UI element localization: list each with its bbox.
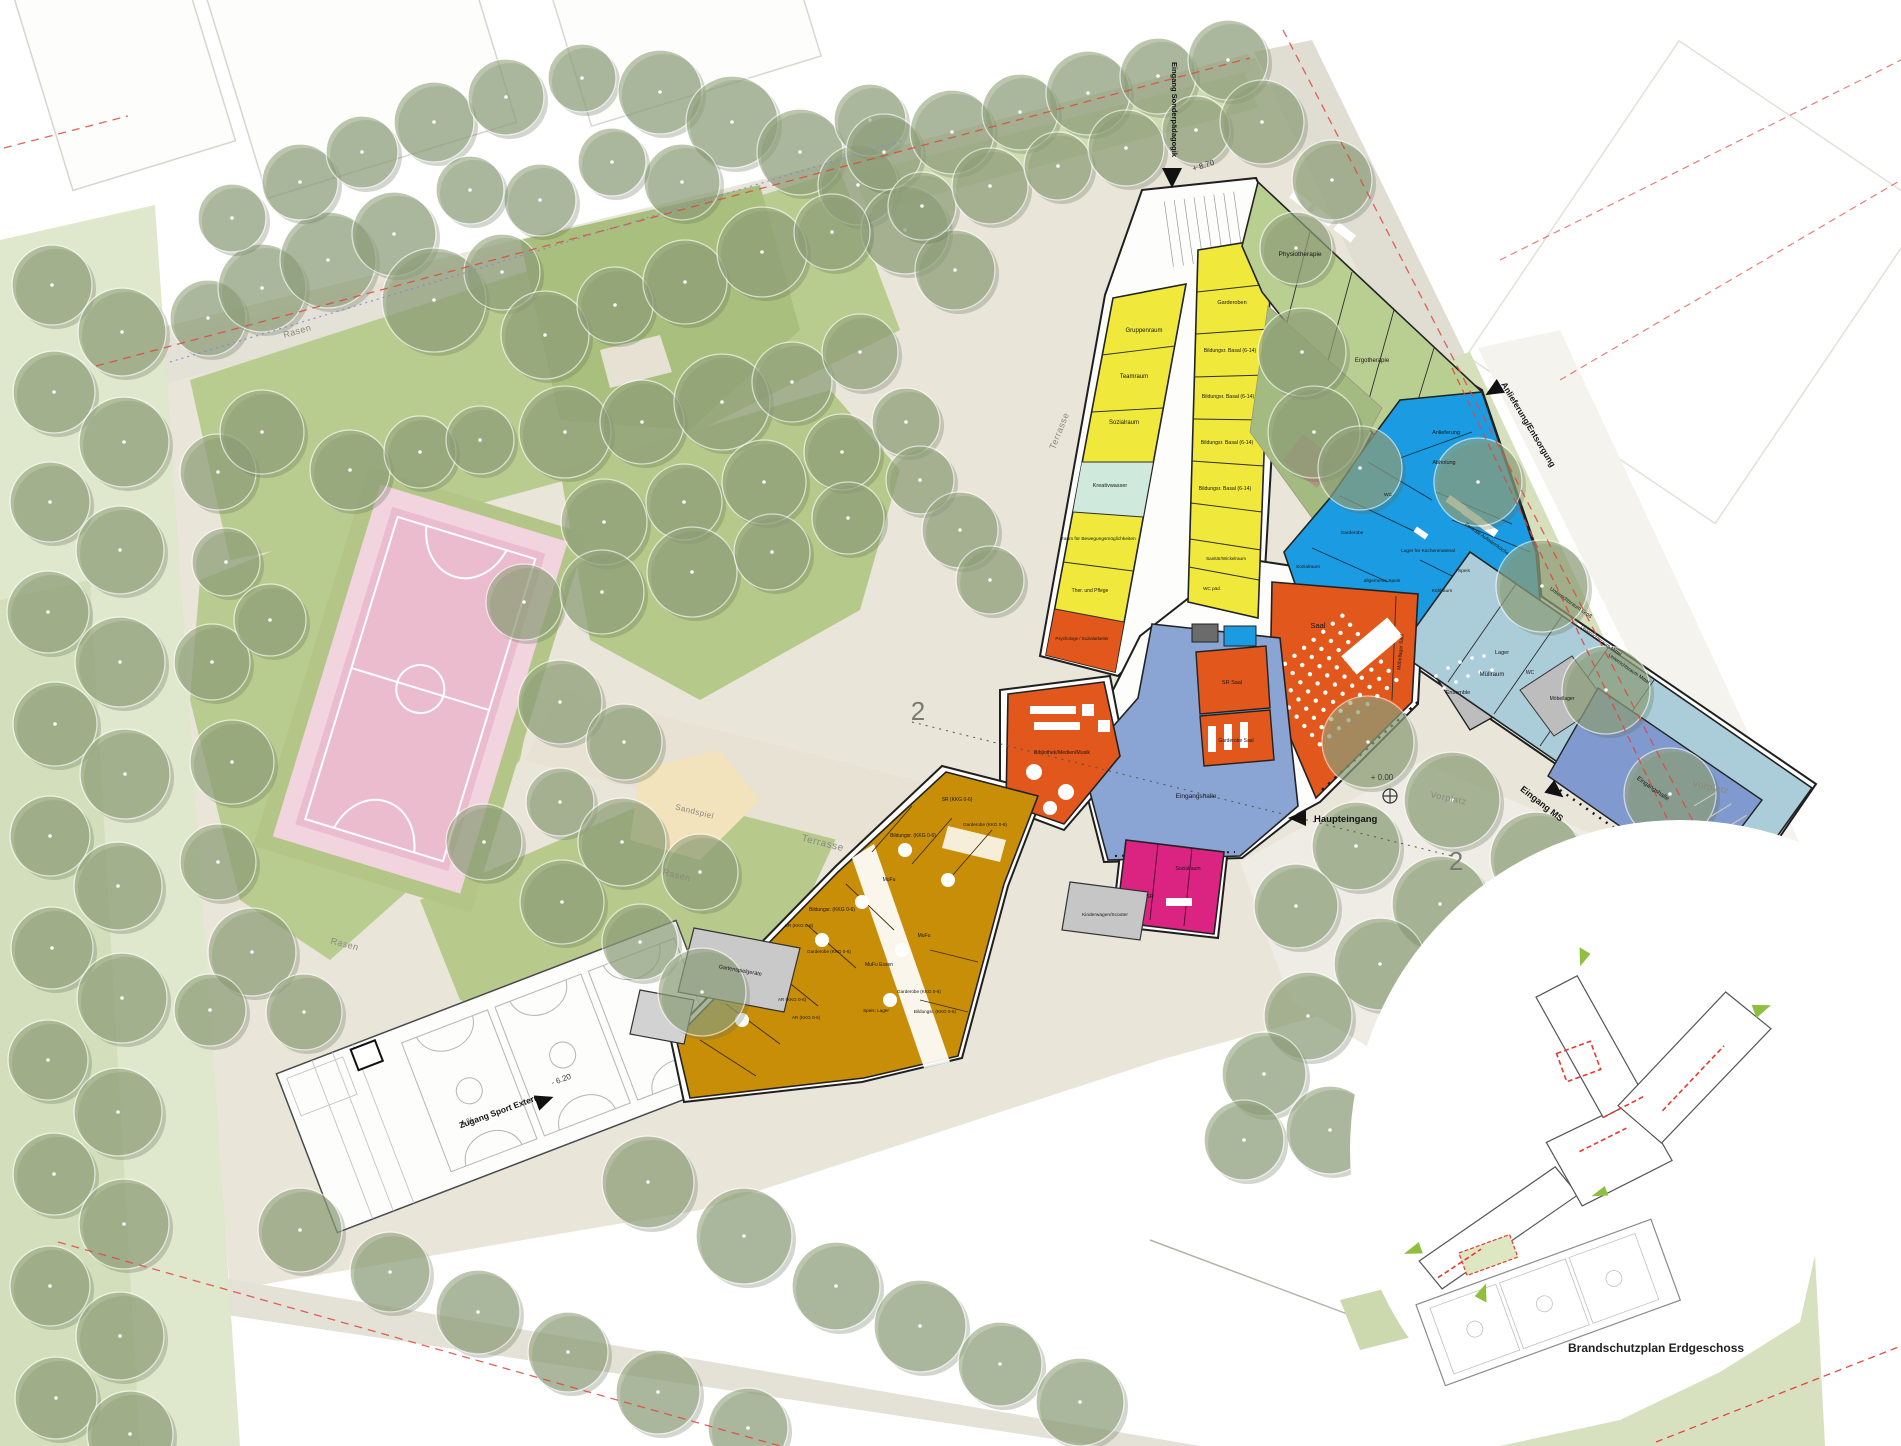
room-label: Garderobe (KKG 0-6) (963, 822, 1007, 827)
room-label: WC (1526, 670, 1535, 676)
tree (696, 1188, 796, 1288)
room-label: Garderobe Saal (1218, 738, 1253, 744)
room-kreativwasser (1073, 462, 1153, 517)
room-label: Kühlraum (1432, 588, 1453, 594)
room-label: SR (KKG 0-6) (942, 797, 973, 803)
room-label: Sanitär/Wickelraum (1206, 556, 1246, 561)
room-label: Garderobe (KKG 0-6) (897, 989, 941, 994)
level-marker: + 0.00 (1371, 773, 1394, 782)
room-label: Bildungsr. (KKG 0-6) (914, 1009, 957, 1014)
room-label: Möbellager (1550, 696, 1575, 702)
tree (198, 184, 270, 256)
room-label: WC (1384, 492, 1393, 498)
tree (528, 1312, 612, 1396)
room-label: Teamraum (1120, 374, 1148, 380)
room-label: Raum für Bewegungsmöglichkeiten (1060, 536, 1136, 542)
room-label: AR (KKG 0-6) (792, 1015, 821, 1020)
room-label: Sozialraum (1109, 420, 1139, 426)
room-label: Bildungsr. Basal (6-14) (1201, 440, 1254, 446)
room-label: allgemeine Speis (1364, 578, 1401, 584)
room-label: Müllraum (1480, 672, 1505, 678)
room-label: Speis; Lager (863, 1008, 889, 1013)
tree (1036, 1358, 1128, 1446)
site-plan-canvas: Gruppenraum Teamraum Sozialraum Kreativw… (0, 0, 1901, 1446)
room-label: Bildungsr. Basal (6-14) (1199, 486, 1252, 492)
haupteingang-label: Haupteingang (1314, 814, 1378, 825)
room-label: Speis (1458, 568, 1471, 574)
tree (436, 156, 508, 228)
room-label: Anlieferung (1432, 430, 1460, 436)
tree (504, 164, 580, 240)
room-label: Bildungsr. Basal (6-14) (1202, 394, 1255, 400)
room-label: SR (KKG 0-6) (785, 923, 814, 928)
room-label: Saal (1310, 621, 1325, 630)
room-label: Gruppenraum (1125, 328, 1162, 334)
room-label: MuFu (918, 933, 931, 939)
room-label: Garderoben (1217, 300, 1246, 306)
room-label: Garderobe (KKG 0-6) (807, 949, 851, 954)
section-marker: 2 (911, 696, 925, 726)
eingang-sp-label: Eingang Sonderpädagogik (1170, 62, 1179, 158)
survey-mark-icon (1383, 789, 1397, 803)
room-label: MuFu Essen (865, 962, 893, 968)
room-label: MuFu (883, 877, 896, 883)
tree (958, 1322, 1046, 1410)
room-label: Ensemble (1446, 690, 1470, 696)
room-label: Kreativwasser (1093, 483, 1128, 489)
tree (578, 128, 650, 200)
room-label: Lager für Küchenmaterial (1401, 548, 1455, 554)
room-label: Bildungsr. (KKG 0-6) (890, 833, 936, 839)
room-label: Garderobe (1341, 530, 1364, 536)
room-label: SR Saal (1222, 680, 1242, 686)
room-label: Bildungsr. (KKG 0-6) (809, 907, 855, 913)
room-label: Sozialraum (1175, 866, 1200, 872)
zone-kinderwagen (1062, 882, 1148, 940)
room-label: Sozialraum (1296, 564, 1320, 570)
room-label: WC päd. (1203, 586, 1221, 591)
room-label: Lager (1495, 650, 1509, 656)
tree (874, 1280, 970, 1376)
room-label: Ther. und Pflege (1072, 588, 1109, 594)
site-plan-sheet: Gruppenraum Teamraum Sozialraum Kreativw… (0, 0, 1901, 1446)
room-label: Bildungsr. Basal (6-14) (1204, 348, 1257, 354)
room-label: Eingangshalle (1176, 793, 1217, 800)
room-label: Psychologe / Sozialarbeiter (1055, 636, 1109, 641)
room-label: Physiotherapie (1279, 251, 1322, 258)
tree (792, 1242, 884, 1334)
room-label: AR (KKG 0-6) (778, 997, 807, 1002)
inset-caption: Brandschutzplan Erdgeschoss (1568, 1341, 1744, 1355)
room-label: SR (1146, 894, 1154, 900)
room-label: Ergotherapie (1355, 358, 1390, 364)
room-label: Abholung (1432, 460, 1455, 466)
room-label: Kinderwagen/Scooter (1082, 912, 1128, 918)
section-marker: 2 (1449, 846, 1463, 876)
room-label: Bibliothek/Medien/Musik (1034, 750, 1090, 756)
